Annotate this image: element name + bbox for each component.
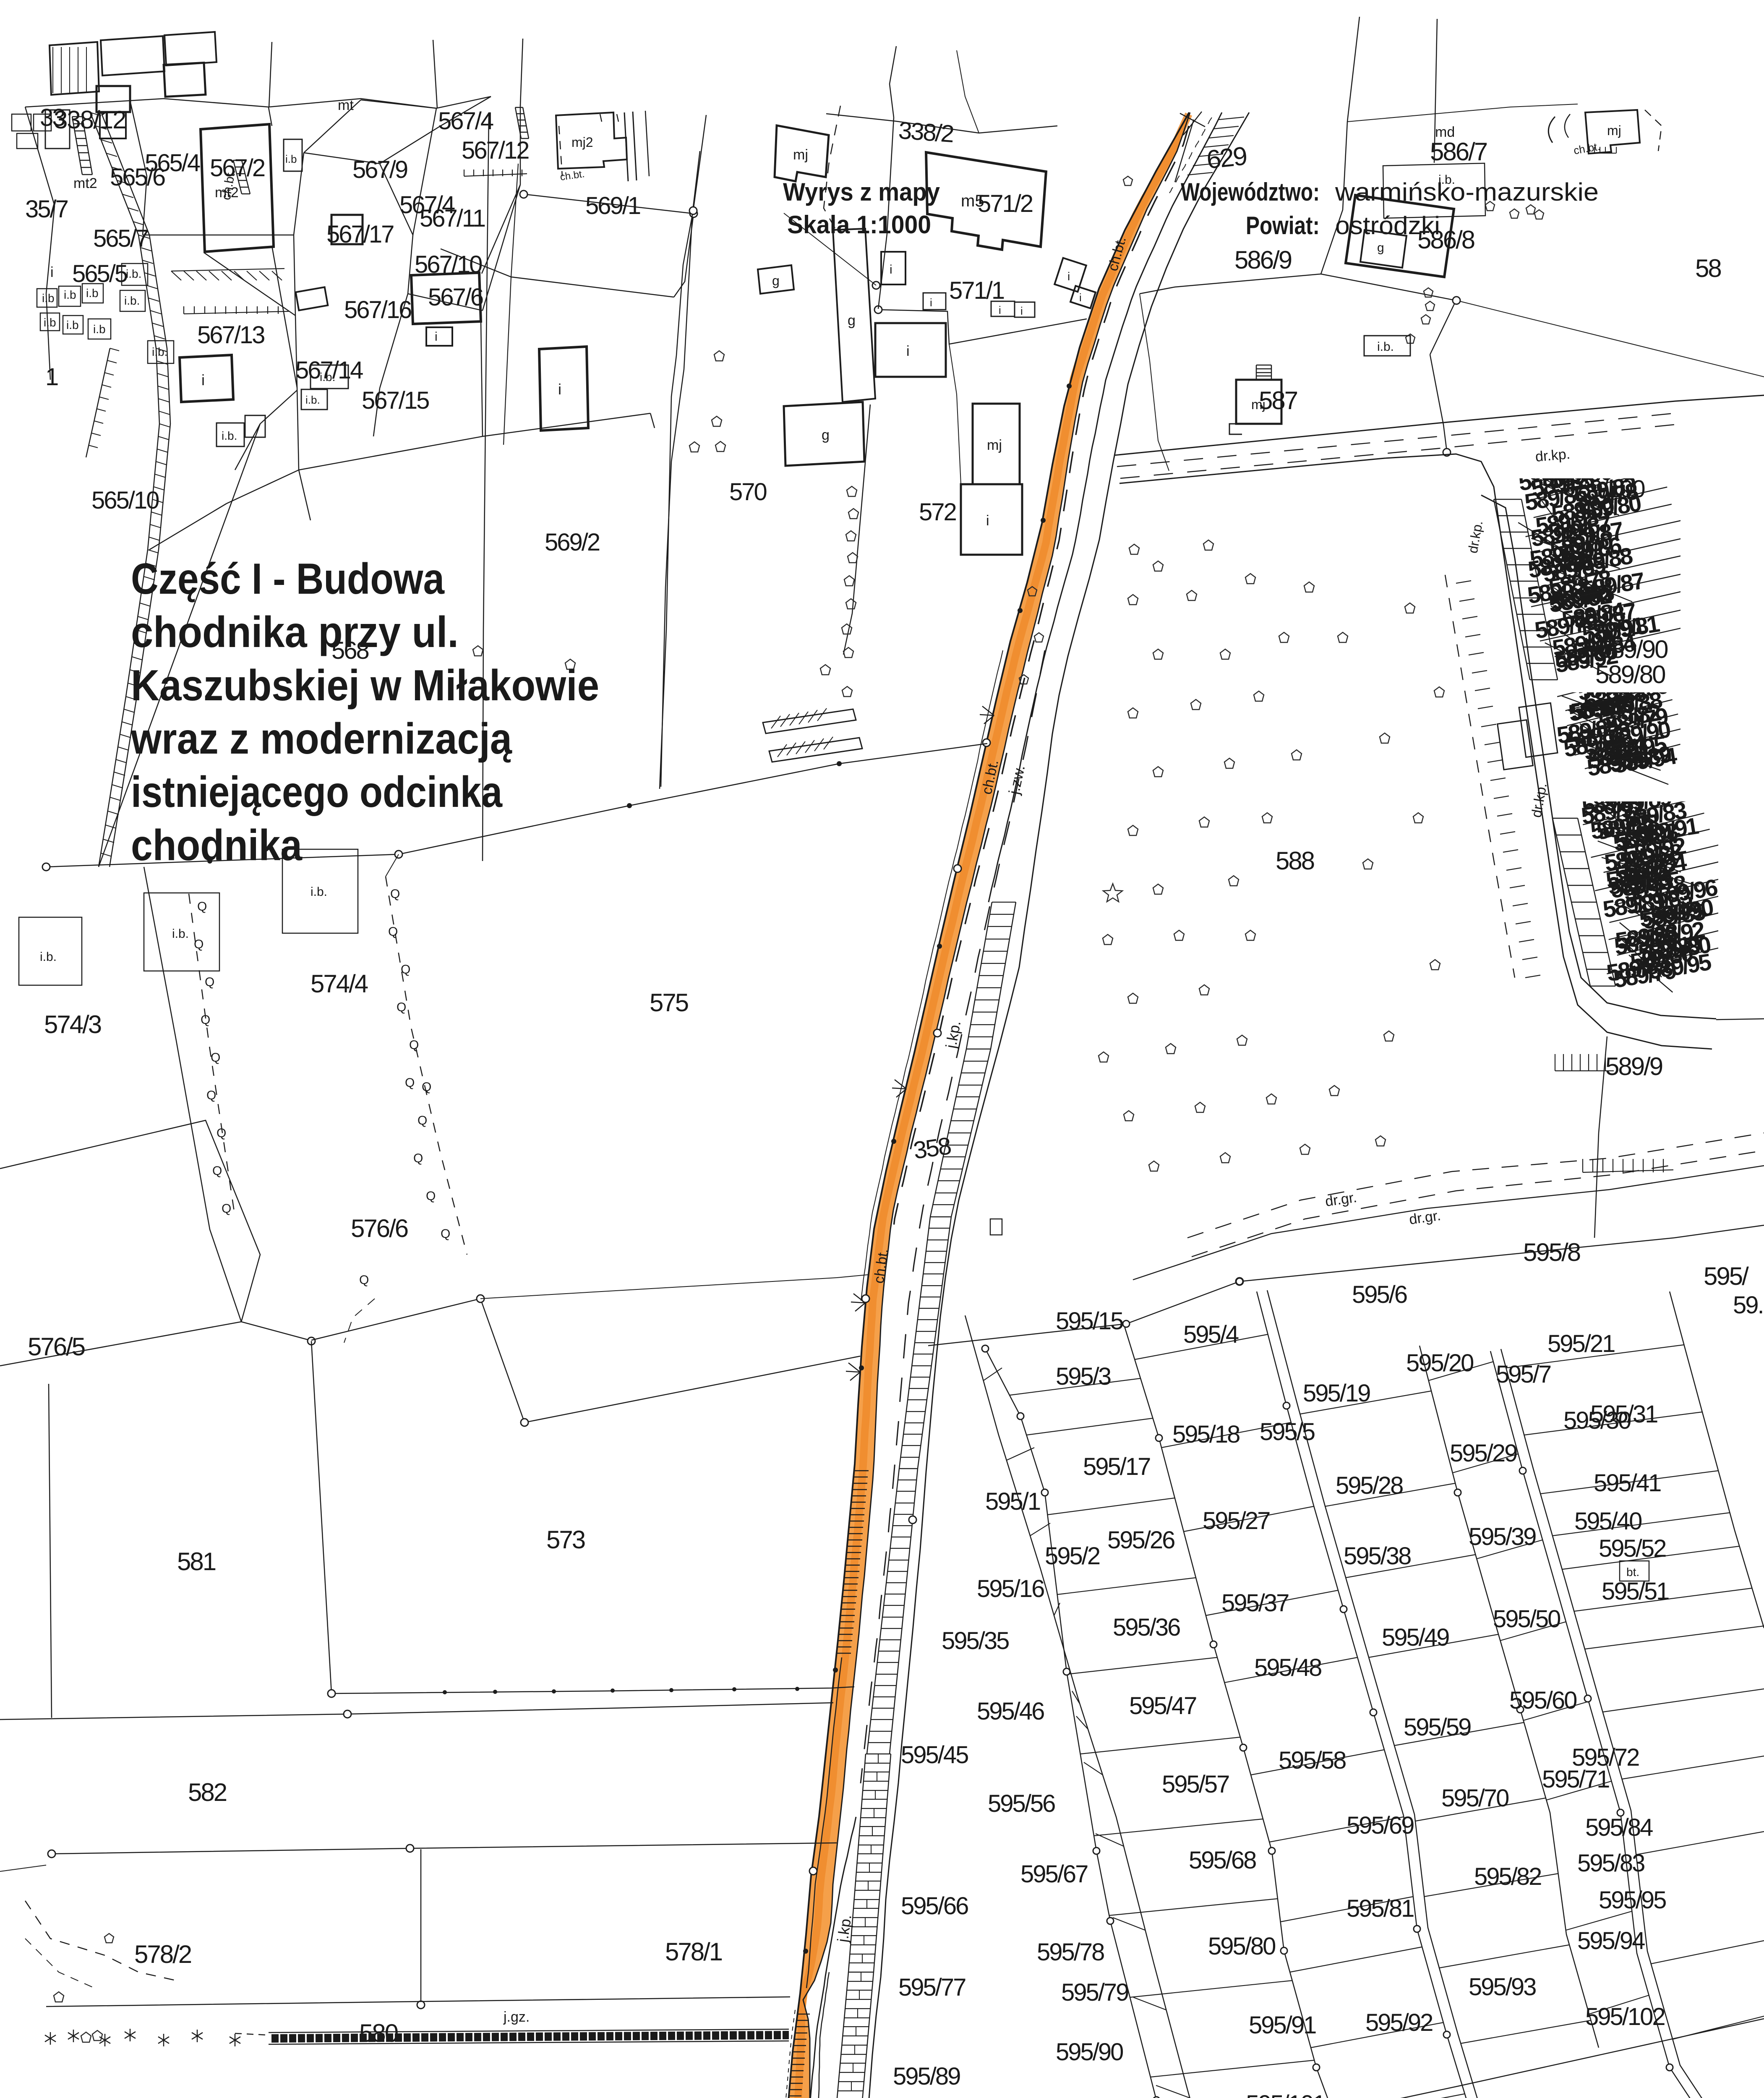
svg-text:595/80: 595/80 — [1208, 1933, 1275, 1960]
svg-text:i: i — [558, 381, 561, 398]
svg-text:595/38: 595/38 — [1344, 1542, 1411, 1570]
svg-text:582: 582 — [188, 1778, 227, 1806]
svg-text:595/95: 595/95 — [1599, 1887, 1666, 1914]
svg-text:595/1: 595/1 — [985, 1488, 1040, 1515]
svg-text:595/91: 595/91 — [1249, 2012, 1316, 2039]
svg-text:575: 575 — [650, 989, 688, 1017]
svg-text:595/21: 595/21 — [1547, 1330, 1615, 1357]
svg-text:595/45: 595/45 — [901, 1741, 968, 1769]
svg-text:571/2: 571/2 — [978, 190, 1033, 217]
svg-text:Q: Q — [217, 1126, 226, 1140]
svg-text:Województwo:: Województwo: — [1181, 178, 1320, 206]
svg-text:Q: Q — [390, 887, 400, 901]
svg-text:629: 629 — [1205, 141, 1248, 175]
svg-text:589/90: 589/90 — [1598, 635, 1668, 663]
svg-text:595/18: 595/18 — [1172, 1421, 1239, 1448]
svg-text:588: 588 — [1276, 847, 1314, 875]
svg-text:574/4: 574/4 — [311, 970, 368, 998]
svg-text:i.b.: i.b. — [126, 267, 141, 280]
svg-text:595/89: 595/89 — [893, 2063, 960, 2090]
svg-text:595/31: 595/31 — [1590, 1401, 1657, 1428]
svg-text:Q: Q — [222, 1202, 231, 1216]
svg-text:Q: Q — [441, 1227, 450, 1241]
svg-text:mj: mj — [1607, 123, 1621, 138]
svg-text:i: i — [435, 330, 438, 344]
svg-text:576/6: 576/6 — [351, 1214, 408, 1242]
svg-text:i.b: i.b — [285, 153, 297, 165]
svg-text:581: 581 — [177, 1547, 216, 1576]
svg-text:595/52: 595/52 — [1599, 1535, 1666, 1562]
svg-text:586/7: 586/7 — [1430, 138, 1487, 166]
svg-text:Q: Q — [205, 975, 214, 989]
svg-text:595/48: 595/48 — [1254, 1654, 1321, 1681]
svg-text:595/57: 595/57 — [1162, 1771, 1229, 1798]
svg-text:mj: mj — [987, 437, 1002, 453]
svg-text:595/41: 595/41 — [1594, 1469, 1661, 1497]
svg-text:589/9: 589/9 — [1605, 1052, 1662, 1080]
svg-text:warmińsko-mazurskie: warmińsko-mazurskie — [1335, 178, 1599, 206]
svg-text:574/3: 574/3 — [44, 1010, 101, 1039]
svg-text:g: g — [848, 313, 856, 329]
svg-text:i.b.: i.b. — [1438, 173, 1455, 187]
svg-text:595/19: 595/19 — [1303, 1380, 1370, 1407]
svg-text:569/1: 569/1 — [585, 192, 640, 219]
svg-text:Q: Q — [206, 1088, 216, 1102]
svg-text:chodnika: chodnika — [131, 821, 303, 870]
svg-text:i: i — [890, 263, 892, 277]
svg-text:595/60: 595/60 — [1509, 1687, 1576, 1714]
svg-text:Q: Q — [388, 925, 398, 939]
svg-text:567/16: 567/16 — [344, 296, 411, 324]
svg-text:572: 572 — [919, 498, 956, 526]
svg-text:i.b: i.b — [44, 316, 56, 329]
svg-text:g: g — [1377, 241, 1384, 255]
svg-text:595/40: 595/40 — [1574, 1508, 1641, 1535]
svg-text:578/2: 578/2 — [134, 1940, 191, 1968]
svg-text:i: i — [201, 371, 205, 389]
svg-text:Q: Q — [422, 1080, 431, 1094]
svg-text:Q: Q — [413, 1151, 423, 1165]
svg-text:595/46: 595/46 — [977, 1698, 1044, 1725]
svg-text:595/47: 595/47 — [1129, 1692, 1196, 1720]
svg-text:567/12: 567/12 — [462, 137, 529, 164]
svg-text:Q: Q — [401, 963, 410, 976]
svg-text:g: g — [772, 273, 780, 288]
svg-text:595/90: 595/90 — [1056, 2038, 1123, 2066]
svg-text:576/5: 576/5 — [28, 1333, 85, 1361]
svg-text:i.b: i.b — [42, 292, 55, 305]
svg-text:595/5: 595/5 — [1260, 1418, 1315, 1446]
svg-text:589/80: 589/80 — [1595, 660, 1665, 689]
svg-text:595/: 595/ — [1704, 1262, 1749, 1290]
svg-text:595/56: 595/56 — [988, 1790, 1055, 1817]
svg-text:mj2: mj2 — [571, 135, 593, 150]
svg-text:i.b.: i.b. — [152, 345, 167, 358]
svg-text:578/1: 578/1 — [665, 1938, 722, 1966]
svg-text:595/94: 595/94 — [1577, 1927, 1645, 1954]
svg-text:i.b.: i.b. — [311, 885, 327, 899]
svg-text:595/59: 595/59 — [1404, 1714, 1471, 1741]
svg-text:595/84: 595/84 — [1585, 1814, 1653, 1841]
svg-text:595/36: 595/36 — [1113, 1614, 1180, 1641]
svg-text:567/6: 567/6 — [428, 284, 483, 311]
svg-text:istniejącego odcinka: istniejącego odcinka — [131, 768, 503, 817]
svg-text:595/26: 595/26 — [1107, 1527, 1174, 1554]
svg-text:595/35: 595/35 — [942, 1627, 1009, 1654]
svg-text:565/7: 565/7 — [93, 225, 148, 252]
svg-text:35/7: 35/7 — [25, 196, 68, 223]
svg-text:i: i — [1067, 270, 1070, 283]
svg-text:Q: Q — [197, 900, 207, 913]
svg-text:595/83: 595/83 — [1577, 1850, 1644, 1877]
svg-text:595/49: 595/49 — [1382, 1624, 1449, 1651]
svg-text:586/8: 586/8 — [1417, 226, 1474, 254]
svg-text:i: i — [930, 296, 932, 309]
svg-text:595/2: 595/2 — [1045, 1542, 1100, 1570]
svg-text:567/15: 567/15 — [362, 387, 429, 414]
svg-text:Skala 1:1000: Skala 1:1000 — [787, 211, 931, 239]
svg-text:i.b.: i.b. — [172, 927, 189, 941]
svg-text:595/82: 595/82 — [1474, 1863, 1541, 1890]
svg-text:595/68: 595/68 — [1189, 1847, 1256, 1874]
svg-text:595/79: 595/79 — [1061, 1979, 1128, 2006]
svg-text:i.b.: i.b. — [1377, 340, 1394, 354]
svg-text:Q: Q — [359, 1273, 369, 1287]
svg-text:mj: mj — [793, 147, 808, 163]
svg-text:595/93: 595/93 — [1469, 1973, 1536, 2001]
svg-text:Część I - Budowa: Część I - Budowa — [131, 555, 445, 603]
svg-text:i.b: i.b — [93, 323, 106, 336]
svg-text:Q: Q — [211, 1051, 220, 1065]
svg-text:595/50: 595/50 — [1493, 1605, 1560, 1633]
svg-text:595/81: 595/81 — [1346, 1895, 1414, 1922]
svg-text:595/92: 595/92 — [1365, 2009, 1433, 2036]
svg-text:dr.kp.: dr.kp. — [1534, 446, 1571, 465]
svg-text:i: i — [50, 264, 54, 280]
svg-text:595/70: 595/70 — [1441, 1785, 1508, 1812]
svg-text:1: 1 — [45, 363, 58, 391]
svg-text:Powiat:: Powiat: — [1246, 211, 1320, 240]
svg-text:338/12: 338/12 — [54, 106, 126, 134]
svg-text:i.b.: i.b. — [124, 294, 140, 307]
svg-text:Q: Q — [409, 1038, 419, 1052]
svg-text:Q: Q — [201, 1013, 210, 1027]
svg-text:i.b: i.b — [86, 287, 99, 300]
svg-text:Q: Q — [405, 1076, 415, 1090]
svg-text:589/100: 589/100 — [1565, 475, 1644, 503]
svg-text:565/4: 565/4 — [145, 149, 200, 177]
svg-text:mt2: mt2 — [73, 175, 97, 191]
svg-text:i.b.: i.b. — [40, 950, 57, 964]
svg-text:mt: mt — [338, 97, 354, 113]
svg-text:567/13: 567/13 — [197, 321, 264, 349]
svg-text:595/17: 595/17 — [1083, 1453, 1150, 1480]
svg-text:i.b: i.b — [66, 318, 79, 331]
svg-text:595/67: 595/67 — [1020, 1861, 1088, 1888]
svg-text:569/2: 569/2 — [545, 529, 600, 556]
svg-text:i: i — [1079, 291, 1082, 304]
svg-text:i.b: i.b — [64, 288, 76, 301]
svg-text:59.: 59. — [1733, 1292, 1763, 1319]
svg-text:595/15: 595/15 — [1056, 1307, 1123, 1335]
svg-text:595/77: 595/77 — [898, 1974, 966, 2001]
svg-text:570: 570 — [729, 478, 767, 506]
svg-text:wraz z modernizacją: wraz z modernizacją — [130, 715, 512, 763]
svg-text:md: md — [1435, 124, 1455, 140]
svg-text:i: i — [1020, 305, 1023, 317]
svg-text:565/10: 565/10 — [91, 487, 159, 514]
svg-text:595/29: 595/29 — [1450, 1440, 1517, 1467]
svg-text:g: g — [822, 427, 830, 443]
svg-text:m5: m5 — [961, 192, 984, 210]
svg-text:567/11: 567/11 — [420, 205, 485, 232]
svg-text:Q: Q — [194, 937, 204, 951]
svg-text:i.b.: i.b. — [305, 394, 320, 406]
svg-text:i.b.: i.b. — [222, 429, 237, 442]
svg-text:586/9: 586/9 — [1234, 246, 1292, 274]
svg-text:595/3: 595/3 — [1056, 1363, 1111, 1390]
svg-text:595/20: 595/20 — [1406, 1349, 1473, 1377]
svg-text:33: 33 — [40, 104, 65, 131]
svg-text:595/27: 595/27 — [1203, 1507, 1270, 1534]
svg-text:i: i — [999, 304, 1001, 316]
svg-text:595/102: 595/102 — [1585, 2003, 1665, 2030]
svg-text:i: i — [986, 513, 989, 529]
svg-text:Q: Q — [426, 1189, 436, 1203]
svg-text:Kaszubskiej w Miłakowie: Kaszubskiej w Miłakowie — [131, 661, 599, 710]
svg-text:j.gz.: j.gz. — [503, 2009, 530, 2025]
svg-text:595/101: 595/101 — [1246, 2090, 1325, 2098]
svg-text:i.b.: i.b. — [320, 371, 335, 384]
svg-text:595/37: 595/37 — [1221, 1589, 1289, 1617]
svg-text:bt.: bt. — [1626, 1566, 1639, 1579]
svg-text:587: 587 — [1259, 386, 1297, 415]
svg-text:Q: Q — [212, 1164, 222, 1178]
svg-text:Q: Q — [418, 1114, 427, 1127]
svg-text:595/28: 595/28 — [1336, 1472, 1403, 1499]
svg-text:595/58: 595/58 — [1279, 1747, 1346, 1774]
svg-text:573: 573 — [546, 1526, 585, 1554]
svg-text:595/78: 595/78 — [1037, 1939, 1104, 1966]
svg-text:Q: Q — [397, 1000, 406, 1014]
svg-text:chodnika przy ul.: chodnika przy ul. — [131, 608, 459, 657]
svg-text:595/69: 595/69 — [1346, 1812, 1414, 1839]
svg-text:595/16: 595/16 — [977, 1575, 1044, 1602]
svg-text:595/39: 595/39 — [1469, 1523, 1536, 1550]
svg-text:567/9: 567/9 — [352, 156, 407, 183]
svg-text:595/66: 595/66 — [901, 1892, 968, 1920]
svg-text:595/6: 595/6 — [1352, 1281, 1407, 1308]
svg-text:595/71: 595/71 — [1542, 1766, 1609, 1793]
svg-text:571/1: 571/1 — [949, 277, 1004, 304]
svg-text:58: 58 — [1695, 254, 1721, 282]
svg-text:595/4: 595/4 — [1183, 1321, 1239, 1348]
svg-text:Wyrys z mapy: Wyrys z mapy — [783, 178, 940, 206]
svg-text:i: i — [906, 343, 910, 359]
svg-text:338/2: 338/2 — [898, 117, 954, 148]
svg-text:595/51: 595/51 — [1602, 1578, 1669, 1605]
svg-text:358: 358 — [912, 1132, 952, 1164]
svg-text:595/7: 595/7 — [1496, 1361, 1551, 1388]
